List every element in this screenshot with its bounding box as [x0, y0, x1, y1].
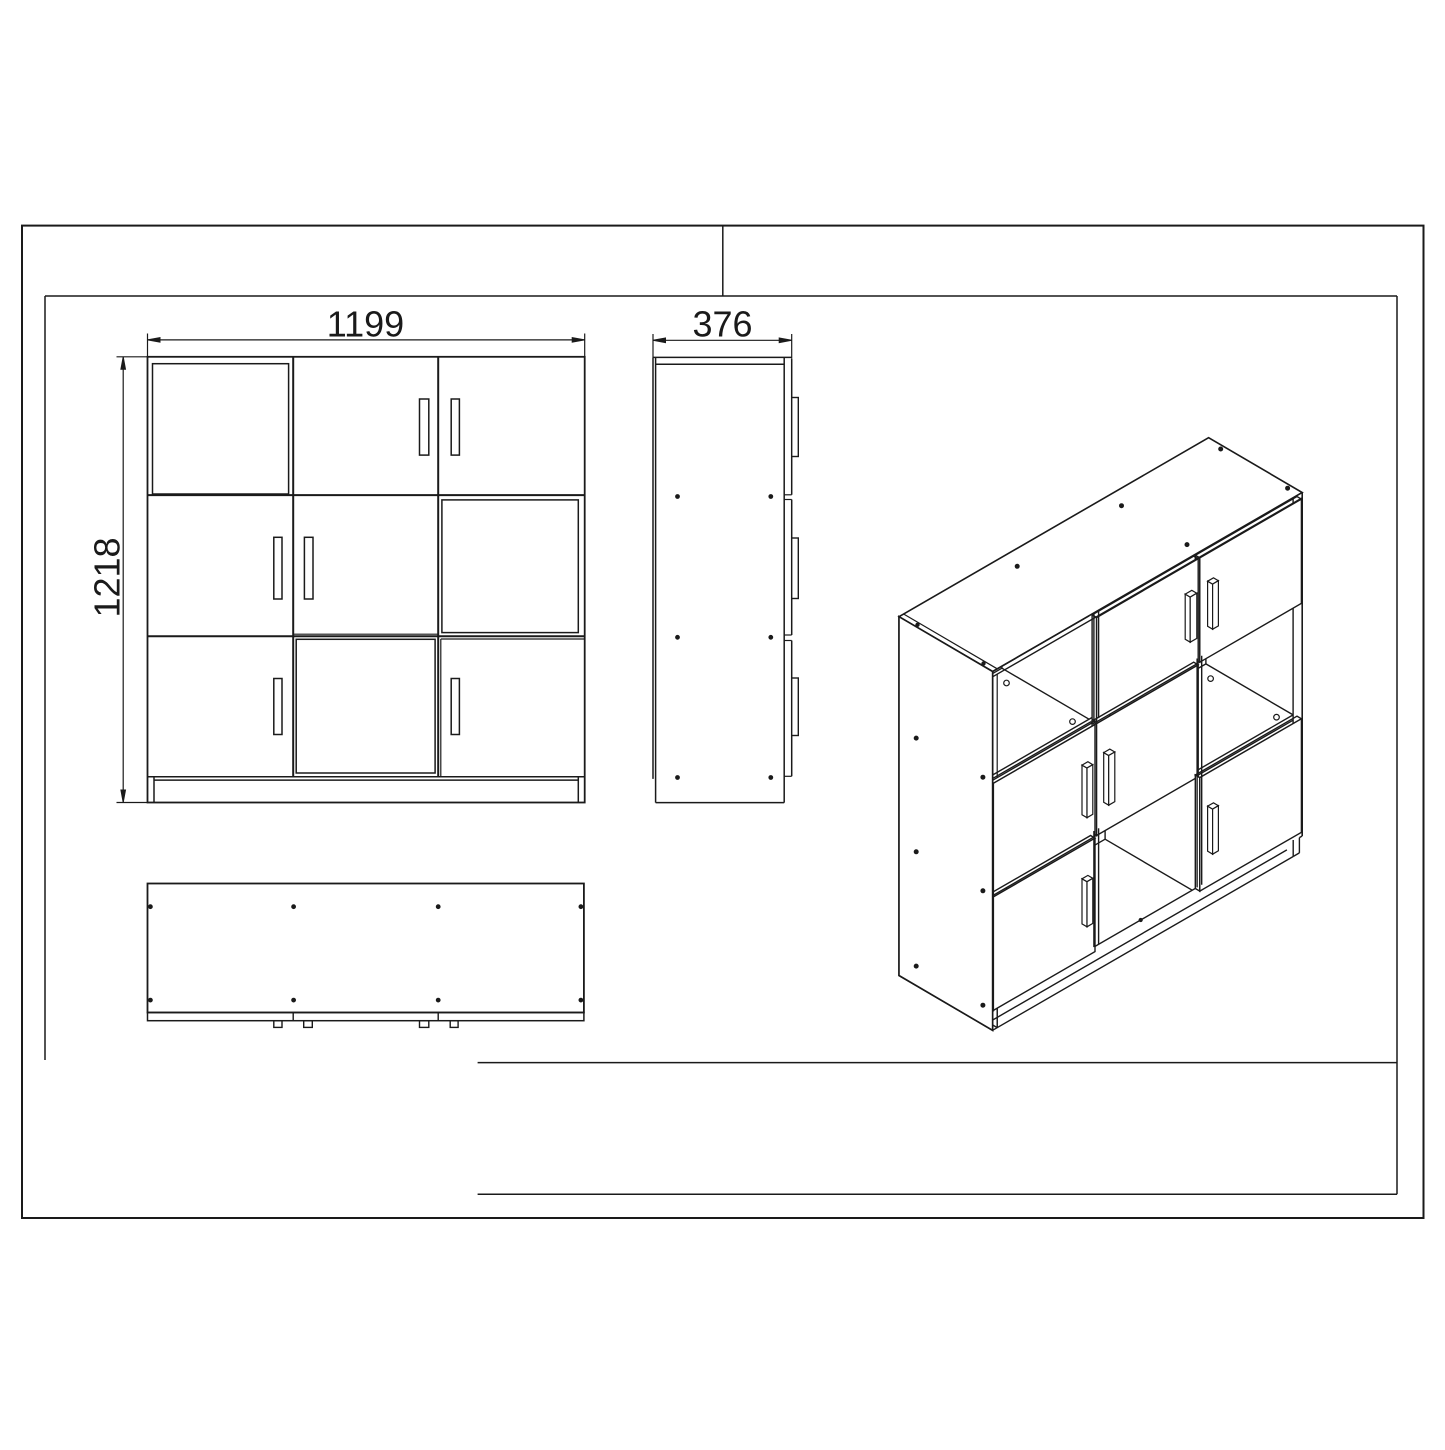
svg-text:1199: 1199 [327, 304, 404, 345]
svg-text:1218: 1218 [87, 537, 128, 617]
svg-text:376: 376 [692, 304, 752, 345]
